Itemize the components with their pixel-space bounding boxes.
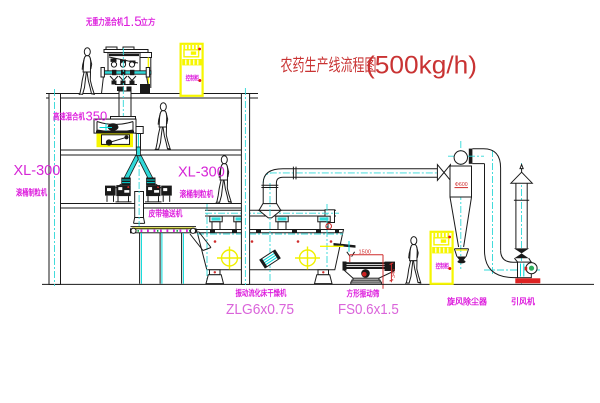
svg-text:立方: 立方: [141, 17, 156, 28]
svg-text:1500: 1500: [359, 249, 371, 255]
svg-text:引风机: 引风机: [511, 296, 536, 306]
svg-text:滚桶制粒机: 滚桶制粒机: [180, 188, 214, 199]
svg-text:皮带输送机: 皮带输送机: [148, 208, 183, 219]
svg-text:XL-300: XL-300: [178, 164, 225, 180]
svg-text:XL-300: XL-300: [14, 163, 61, 179]
svg-text:345: 345: [391, 269, 397, 278]
svg-text:FS0.6x1.5: FS0.6x1.5: [338, 300, 399, 317]
svg-text:滚桶制粒机: 滚桶制粒机: [16, 187, 48, 197]
svg-text:1.5: 1.5: [123, 14, 142, 29]
svg-text:350: 350: [86, 108, 108, 123]
svg-text:高速混合机: 高速混合机: [53, 110, 85, 121]
svg-text:旋风除尘器: 旋风除尘器: [446, 296, 488, 306]
svg-text:方形振动筛: 方形振动筛: [347, 287, 380, 298]
svg-text:(500kg/h): (500kg/h): [366, 52, 477, 80]
svg-text:控制柜: 控制柜: [186, 73, 200, 82]
svg-text:振动流化床干燥机: 振动流化床干燥机: [236, 287, 287, 298]
svg-text:ZLG6x0.75: ZLG6x0.75: [226, 301, 294, 317]
svg-text:无重力混合机: 无重力混合机: [85, 16, 123, 28]
svg-text:农药生产线流程图: 农药生产线流程图: [281, 56, 377, 76]
